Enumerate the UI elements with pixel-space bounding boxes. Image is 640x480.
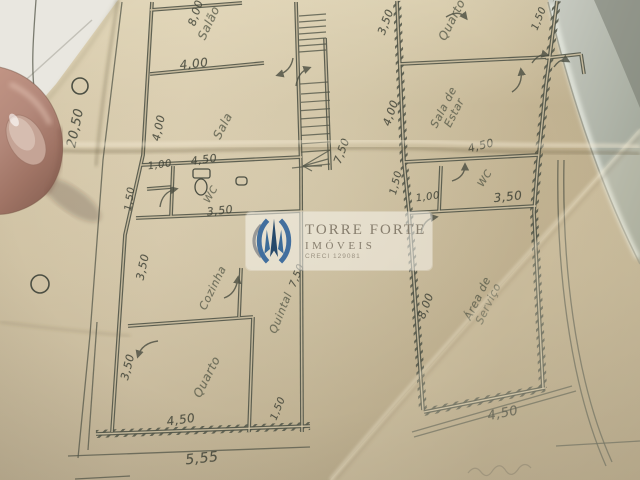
- logo-subtitle: IMÓVEIS: [305, 240, 426, 252]
- watermark-logo: TORRE FORTE IMÓVEIS CRECI 129081: [246, 212, 432, 270]
- logo-brand: TORRE FORTE: [305, 222, 426, 239]
- torre-forte-logo-icon: [250, 217, 298, 265]
- logo-creci: CRECI 129081: [305, 253, 426, 260]
- floorplan-photo: 20,508,00Salão4,004,00Sala1,004,501,50WC…: [0, 0, 640, 480]
